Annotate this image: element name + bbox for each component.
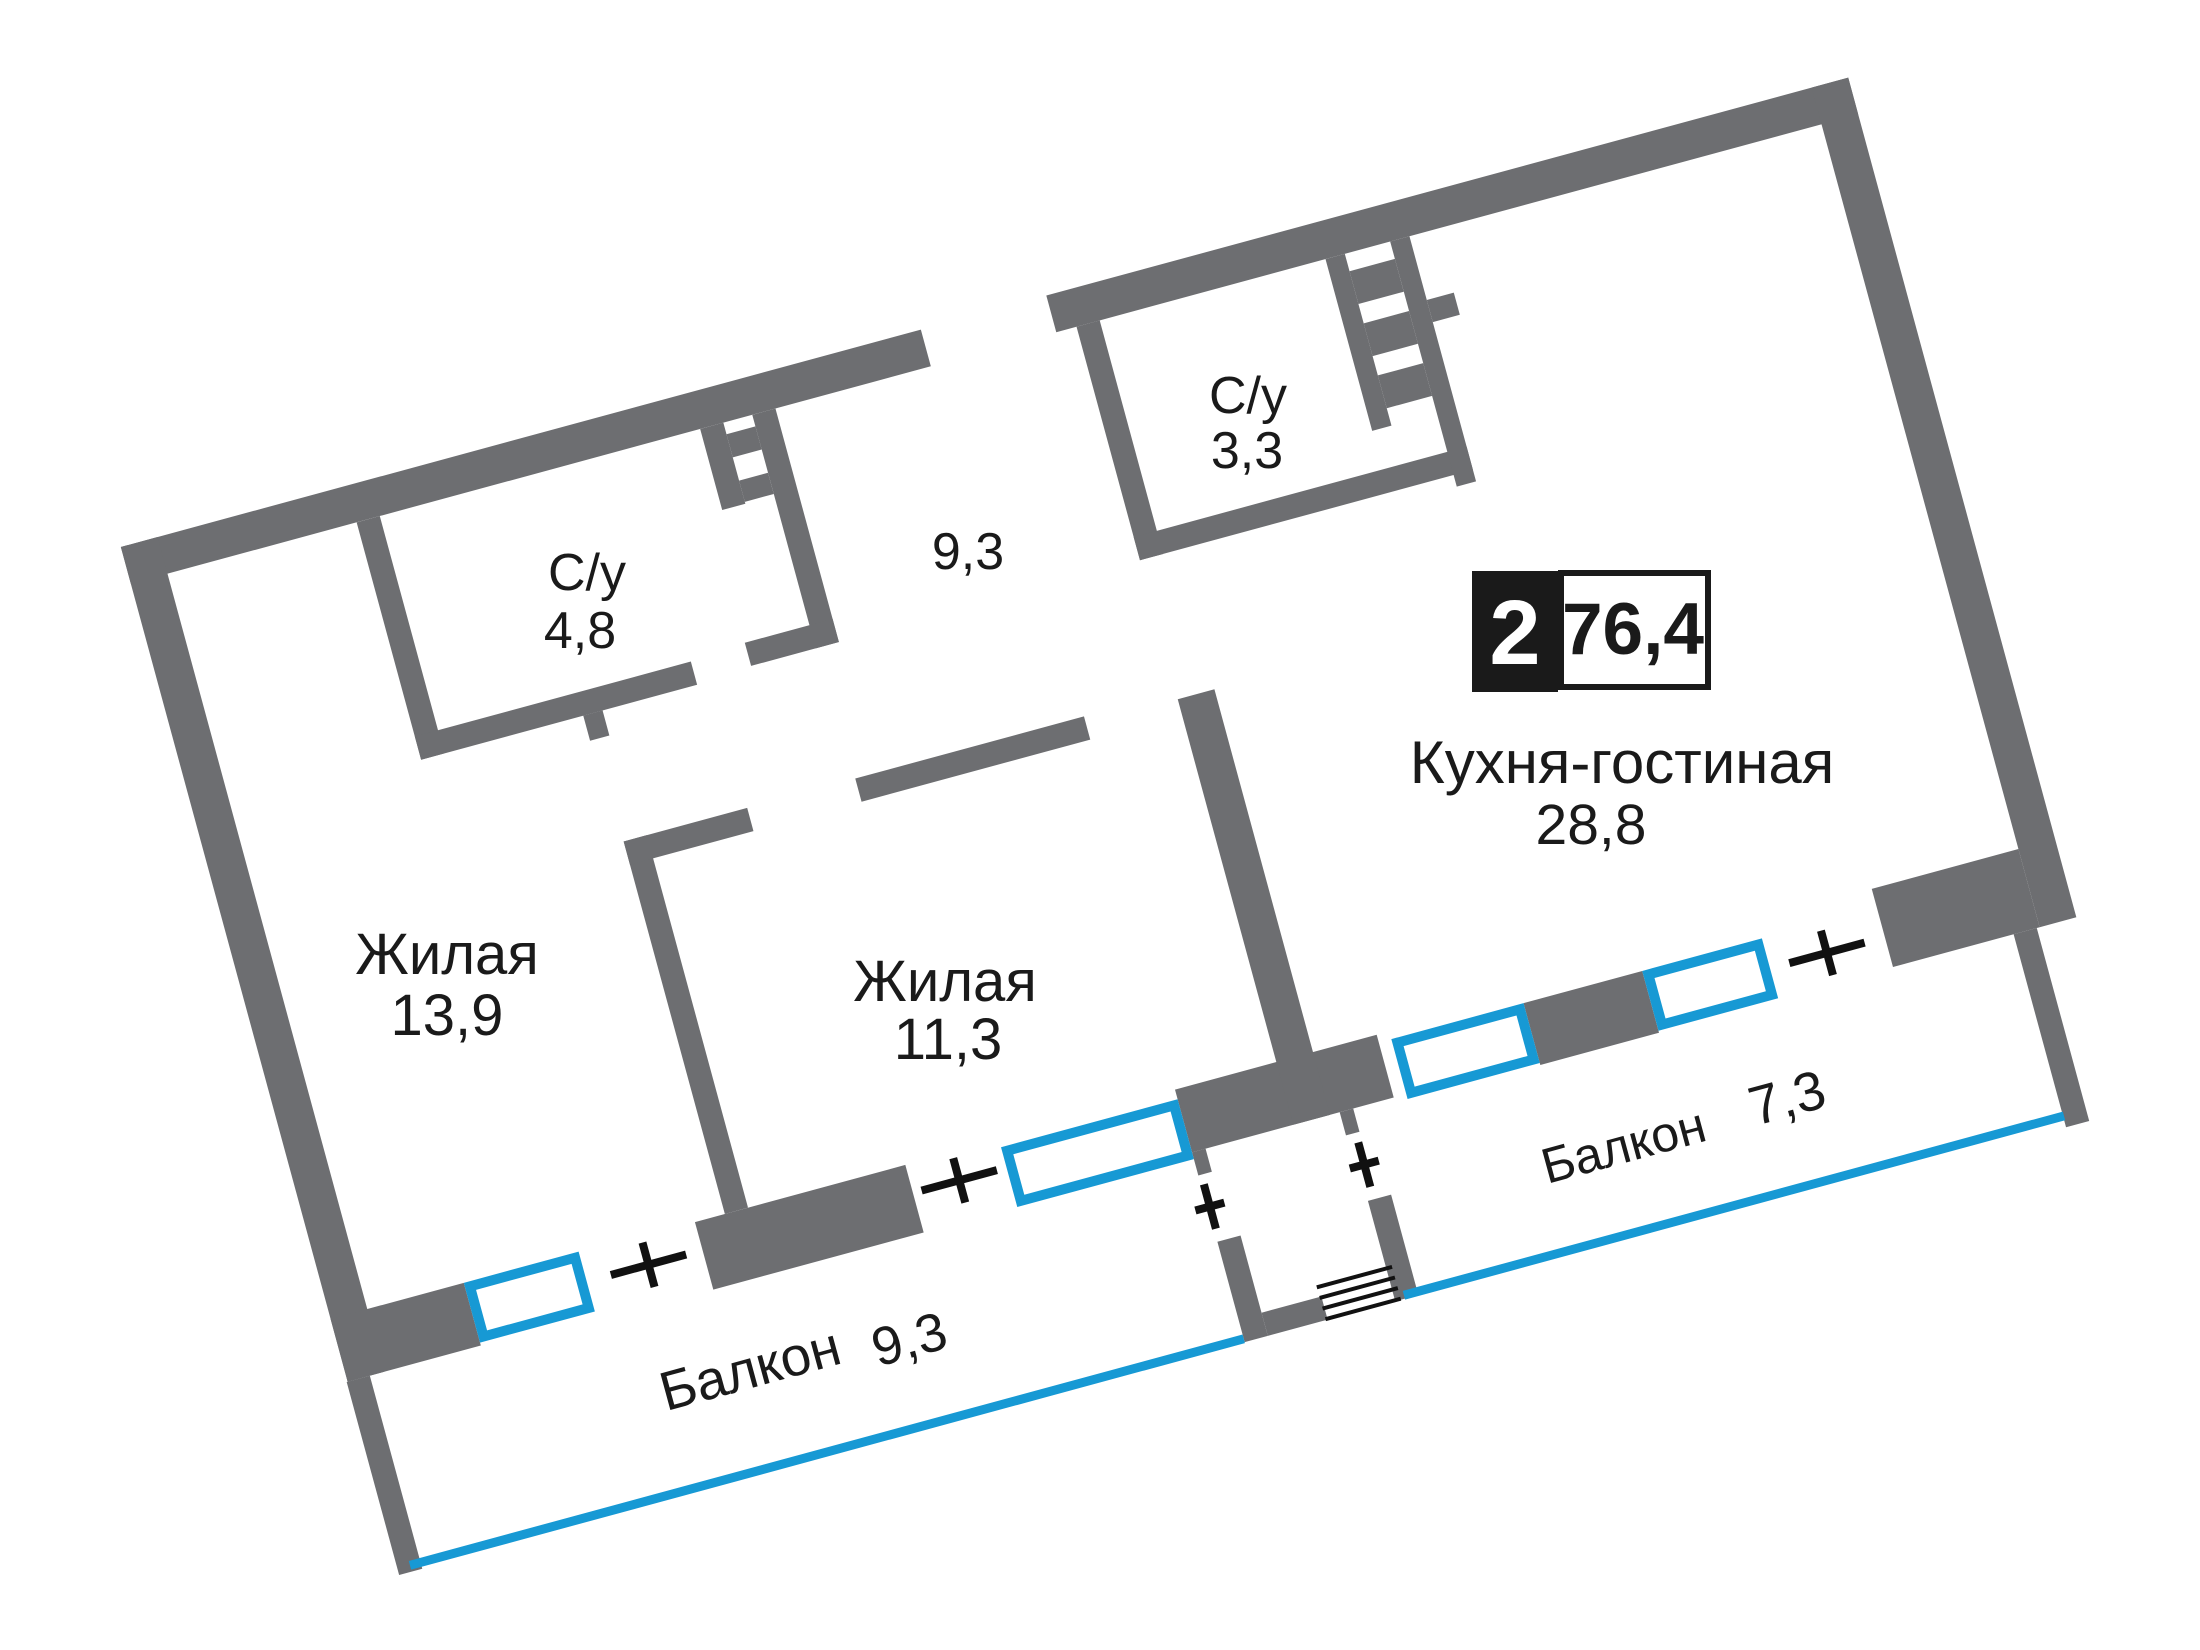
svg-text:4,8: 4,8 [544,602,616,660]
svg-text:С/у: С/у [548,544,626,602]
svg-text:13,9: 13,9 [391,983,504,1048]
svg-text:9,3: 9,3 [932,523,1004,581]
svg-text:28,8: 28,8 [1536,793,1647,857]
svg-text:2: 2 [1489,582,1540,684]
svg-text:11,3: 11,3 [894,1007,1003,1072]
svg-text:Жилая: Жилая [355,922,538,987]
svg-text:С/у: С/у [1209,367,1287,425]
svg-text:Жилая: Жилая [853,949,1036,1014]
svg-text:76,4: 76,4 [1562,589,1704,670]
svg-text:Кухня-гостиная: Кухня-гостиная [1410,729,1834,796]
svg-text:3,3: 3,3 [1211,422,1283,480]
